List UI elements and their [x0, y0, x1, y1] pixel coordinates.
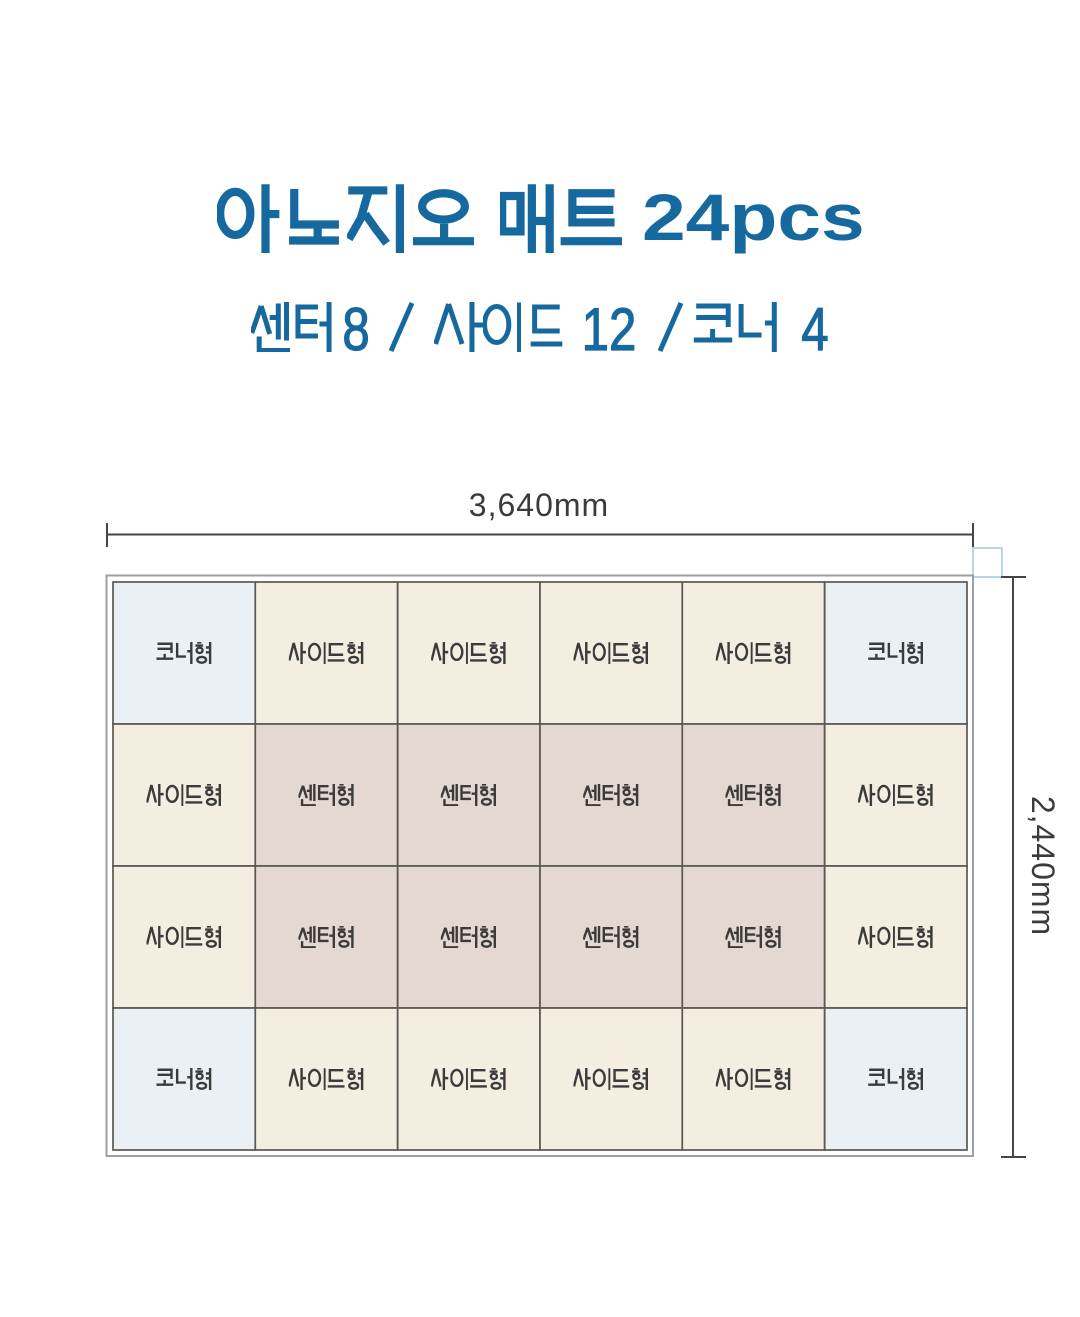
- svg-text:24pcs: 24pcs: [642, 181, 865, 255]
- svg-text:3,640mm: 3,640mm: [469, 487, 609, 523]
- svg-text:2,440mm: 2,440mm: [1025, 796, 1061, 936]
- svg-text:4: 4: [801, 295, 828, 363]
- svg-text:12: 12: [582, 295, 637, 363]
- svg-text:8: 8: [342, 295, 369, 363]
